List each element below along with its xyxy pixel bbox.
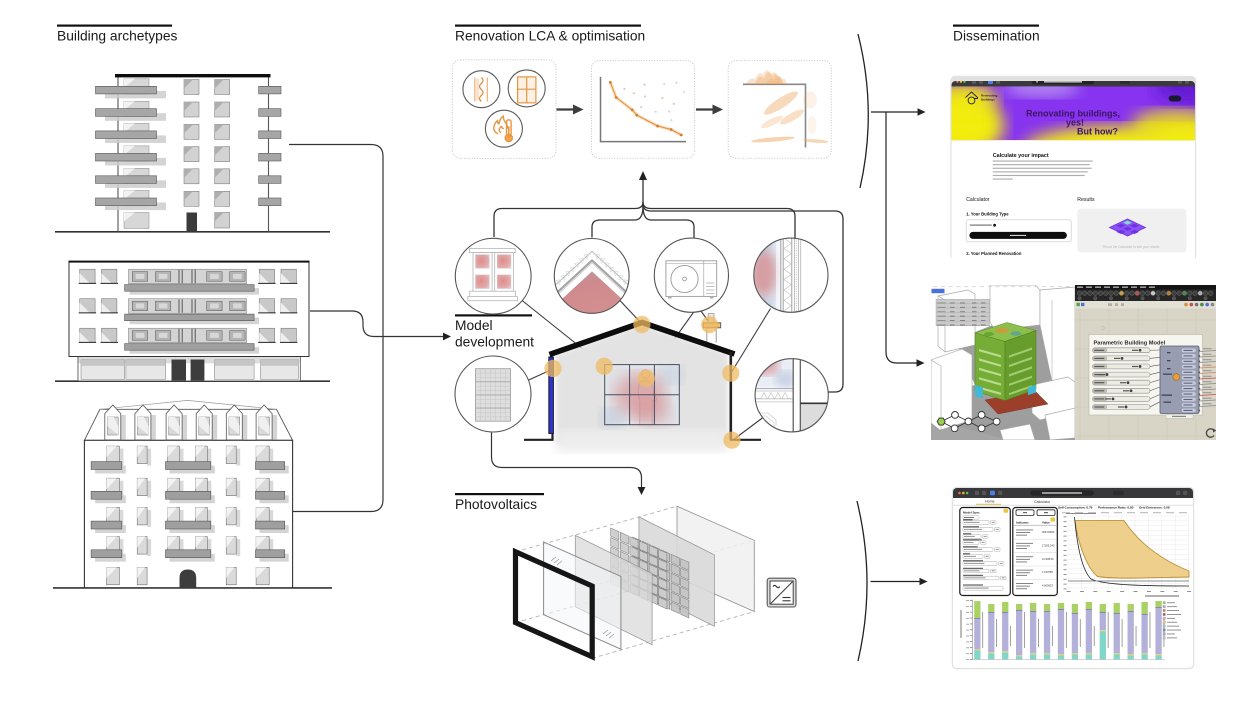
svg-text:Calculate your impact: Calculate your impact — [993, 153, 1049, 159]
svg-text:Self Consumption: 0.79: Self Consumption: 0.79 — [1058, 506, 1093, 510]
svg-text:4.663623: 4.663623 — [1042, 584, 1053, 588]
svg-text:Calculator: Calculator — [966, 197, 990, 203]
svg-text:Performance Ratio: 0.85: Performance Ratio: 0.85 — [1098, 506, 1134, 510]
svg-text:908.40693: 908.40693 — [1042, 530, 1055, 534]
svg-text:development: development — [455, 334, 534, 349]
svg-text:Buildings: Buildings — [981, 98, 995, 102]
svg-text:1. Your Building Type: 1. Your Building Type — [966, 212, 1009, 217]
svg-text:But how?: But how? — [1077, 127, 1118, 137]
svg-text:Parametric Building Model: Parametric Building Model — [1094, 341, 1166, 347]
svg-text:Indicator: Indicator — [1016, 521, 1030, 525]
svg-text:Model Spec: Model Spec — [963, 510, 980, 514]
svg-text:Home: Home — [985, 500, 995, 504]
svg-text:Fill out the Calculator to see: Fill out the Calculator to see your resu… — [1103, 245, 1160, 249]
svg-text:Value: Value — [1042, 521, 1050, 525]
svg-text:Photovoltaics: Photovoltaics — [455, 497, 537, 512]
svg-text:1.157055: 1.157055 — [1042, 570, 1053, 574]
svg-text:Renovation LCA & optimisation: Renovation LCA & optimisation — [455, 28, 645, 43]
svg-text:Model: Model — [455, 318, 493, 333]
svg-text:Grid Emissions: 0.08: Grid Emissions: 0.08 — [1139, 506, 1170, 510]
svg-text:Building archetypes: Building archetypes — [57, 28, 178, 43]
svg-text:Results: Results — [1077, 197, 1095, 203]
svg-text:Calculator: Calculator — [1034, 500, 1051, 504]
svg-text:2. Your Planned Renovation: 2. Your Planned Renovation — [966, 251, 1022, 256]
svg-text:10.938.66: 10.938.66 — [1042, 557, 1054, 561]
svg-text:17265,240: 17265,240 — [1042, 543, 1055, 547]
svg-text:Dissemination: Dissemination — [953, 28, 1040, 43]
